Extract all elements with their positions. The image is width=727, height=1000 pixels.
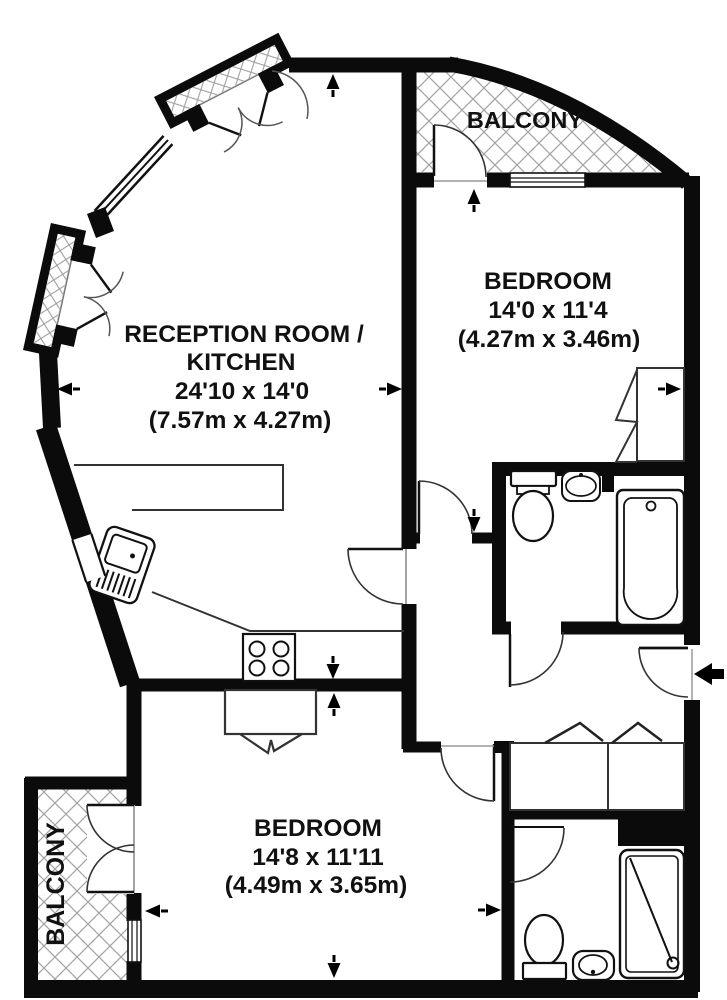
svg-text:BALCONY: BALCONY <box>467 107 584 133</box>
svg-text:KITCHEN: KITCHEN <box>187 349 296 376</box>
svg-text:(4.49m x 3.65m): (4.49m x 3.65m) <box>225 872 408 899</box>
svg-text:RECEPTION ROOM /: RECEPTION ROOM / <box>124 321 364 348</box>
svg-text:14'0 x 11'4: 14'0 x 11'4 <box>488 297 608 324</box>
svg-text:BEDROOM: BEDROOM <box>484 268 612 295</box>
svg-text:14'8 x 11'11: 14'8 x 11'11 <box>252 844 384 871</box>
svg-text:(7.57m x 4.27m): (7.57m x 4.27m) <box>149 407 332 434</box>
svg-text:(4.27m x 3.46m): (4.27m x 3.46m) <box>458 326 641 353</box>
svg-text:BEDROOM: BEDROOM <box>254 815 382 842</box>
svg-text:24'10 x 14'0: 24'10 x 14'0 <box>175 378 309 405</box>
svg-text:BALCONY: BALCONY <box>42 822 70 946</box>
